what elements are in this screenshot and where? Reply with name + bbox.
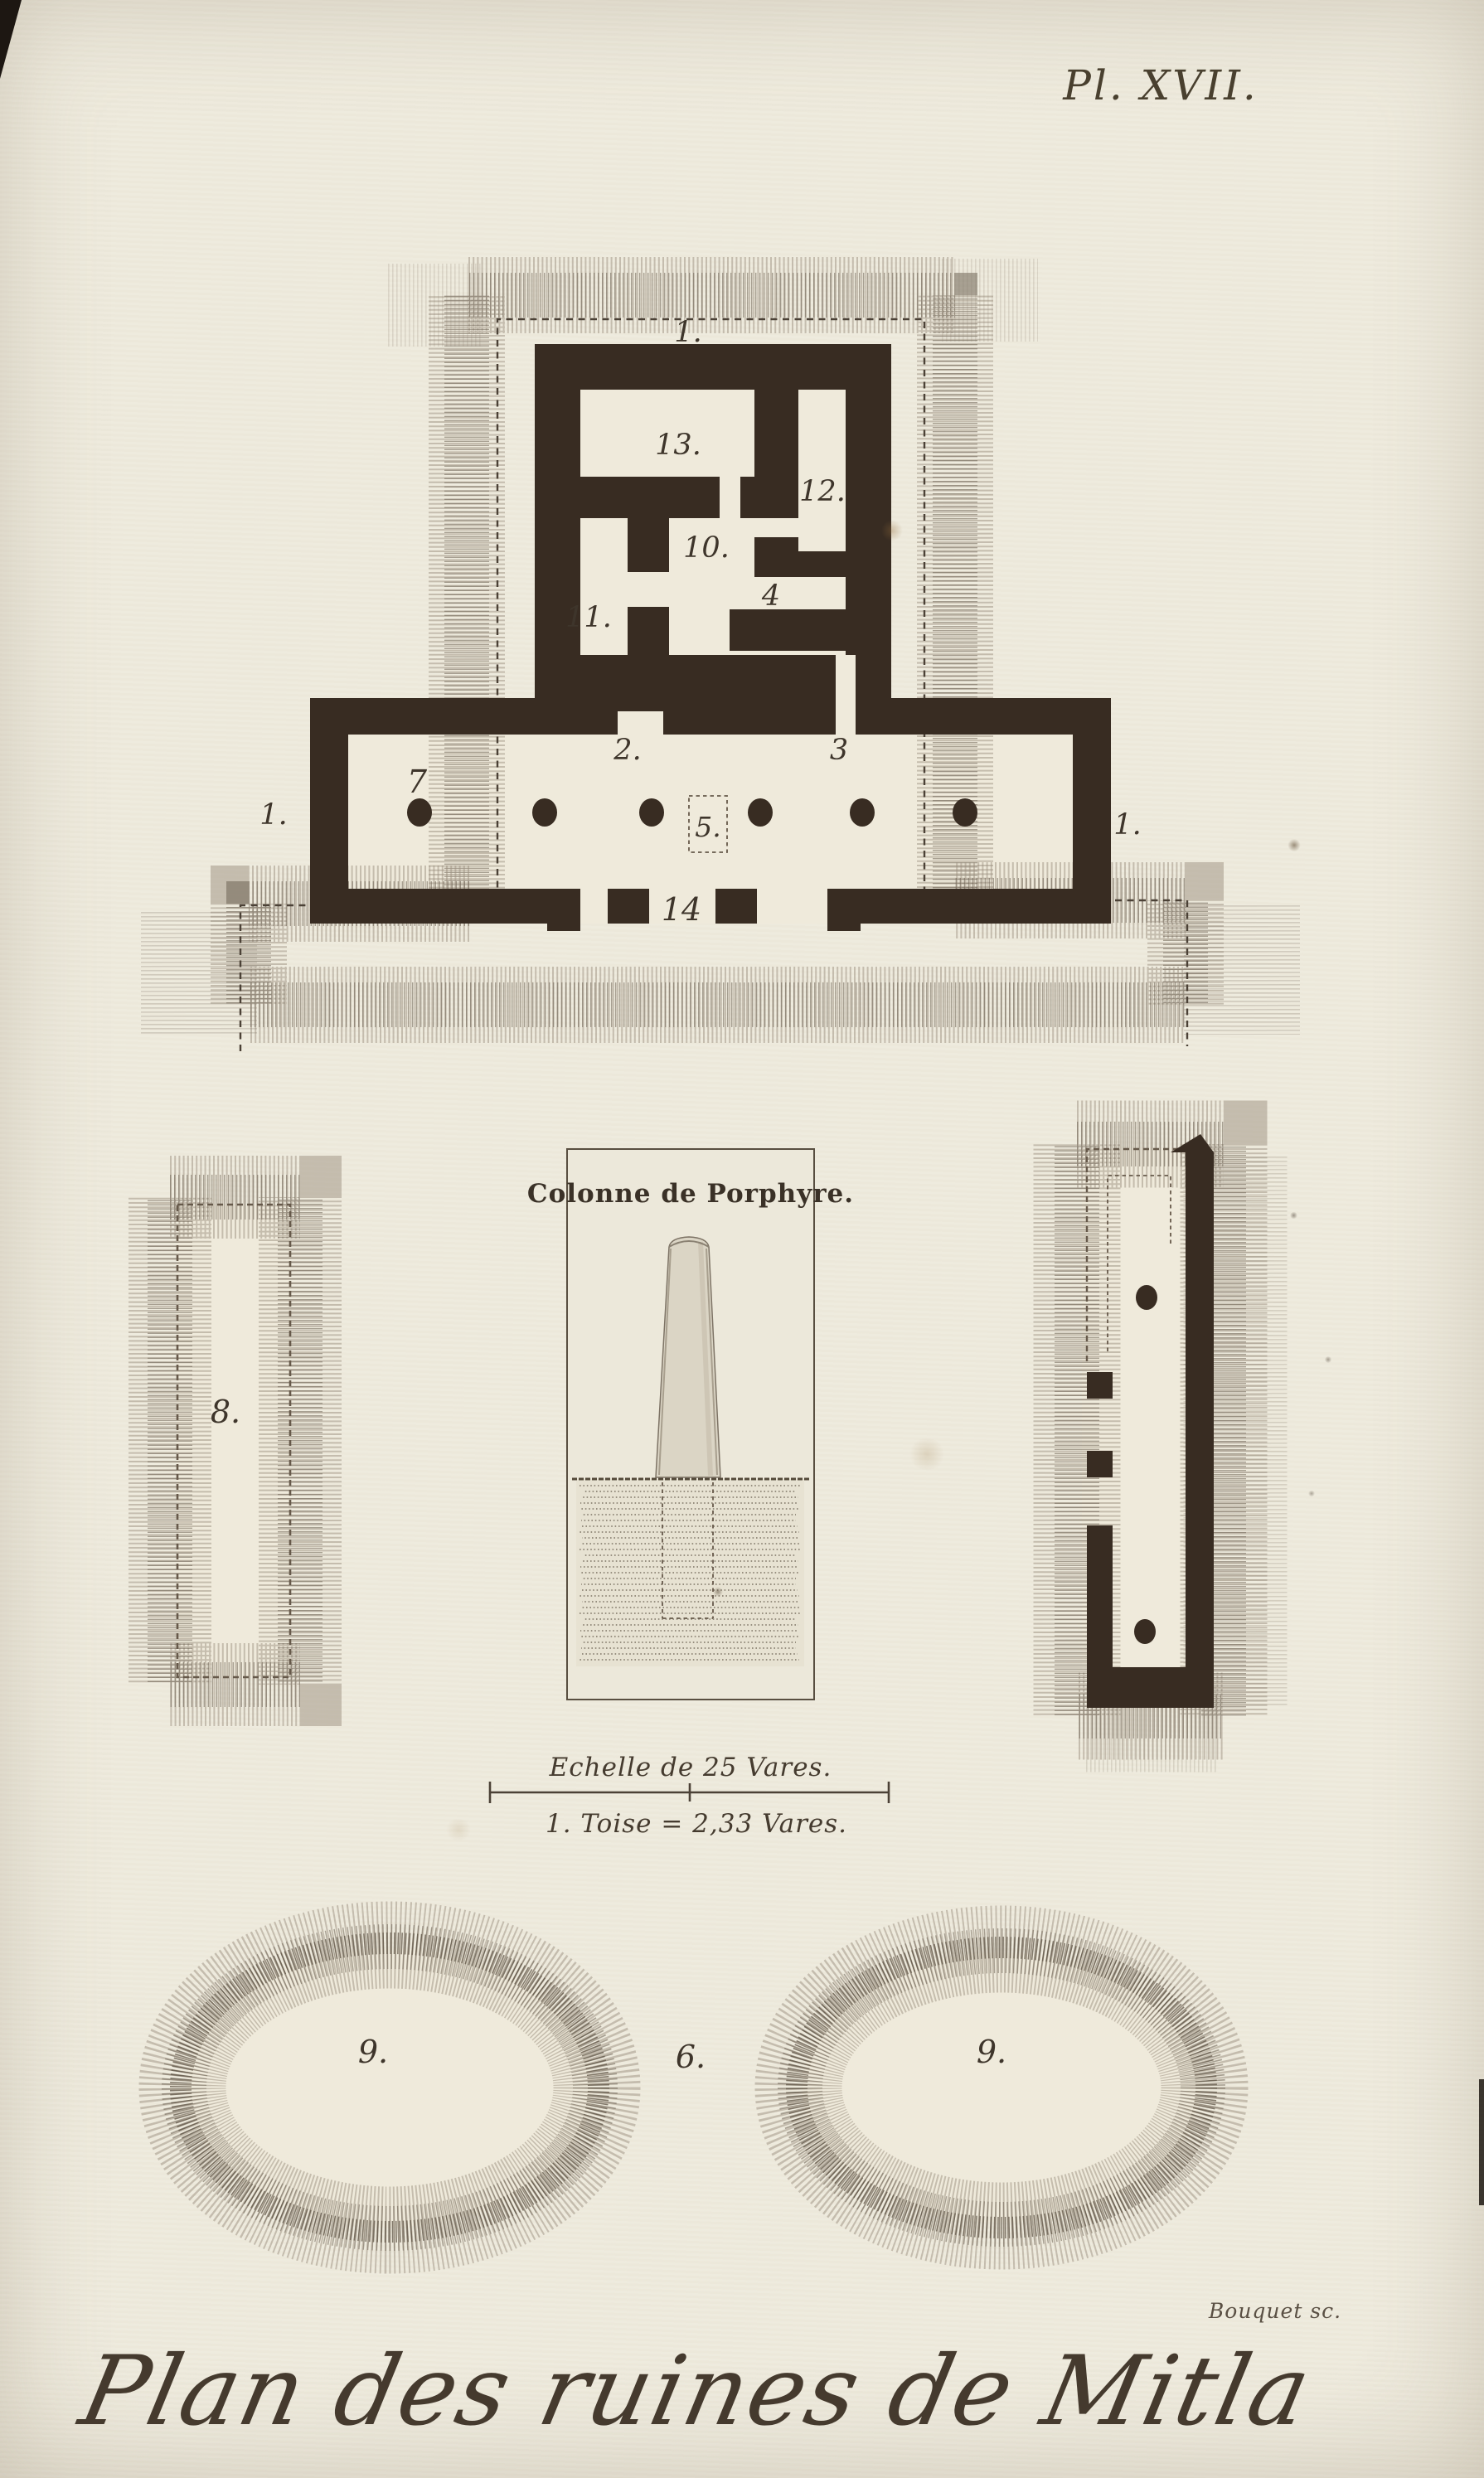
label-door-14: 14 <box>662 891 701 928</box>
label-terrace-right: 1. <box>1113 808 1141 841</box>
label-mound-6: 6. <box>676 2039 706 2075</box>
label-door-2: 2. <box>613 734 641 767</box>
svg-text:Plan des ruines de Mitla: Plan des ruines de Mitla <box>70 2335 1321 2446</box>
engraving-canvas: Pl. XVII. 1. 13. 12. 10. 11. 4 2. 3 7 5.… <box>0 0 1484 2478</box>
plate-number: Pl. XVII. <box>1062 61 1258 109</box>
label-room-11: 11. <box>565 601 612 634</box>
label-column-7: 7 <box>407 764 428 800</box>
column-figure <box>567 1149 814 1700</box>
label-room-10: 10. <box>683 531 730 565</box>
label-room-12: 12. <box>799 475 846 508</box>
label-room-4: 4 <box>761 579 780 613</box>
label-mound-8: 8. <box>211 1394 240 1430</box>
scale-caption: Echelle de 25 Vares. <box>549 1753 832 1782</box>
label-mound-9-right: 9. <box>977 2034 1006 2070</box>
label-mound-9-left: 9. <box>358 2034 388 2070</box>
label-room-13: 13. <box>655 429 701 462</box>
label-terrace-top: 1. <box>674 316 701 349</box>
engraving-plate: Pl. XVII. 1. 13. 12. 10. 11. 4 2. 3 7 5.… <box>0 0 1484 2478</box>
label-altar-5: 5. <box>695 811 721 843</box>
scale-bar <box>490 1782 889 1803</box>
column-figure-title: Colonne de Porphyre. <box>527 1179 854 1209</box>
scale-conversion: 1. Toise = 2,33 Vares. <box>546 1809 847 1839</box>
engraver-credit: Bouquet sc. <box>1208 2299 1341 2323</box>
label-terrace-left: 1. <box>259 798 287 832</box>
plate-title: Plan des ruines de Mitla <box>70 2335 1321 2446</box>
label-door-3: 3 <box>830 734 848 767</box>
